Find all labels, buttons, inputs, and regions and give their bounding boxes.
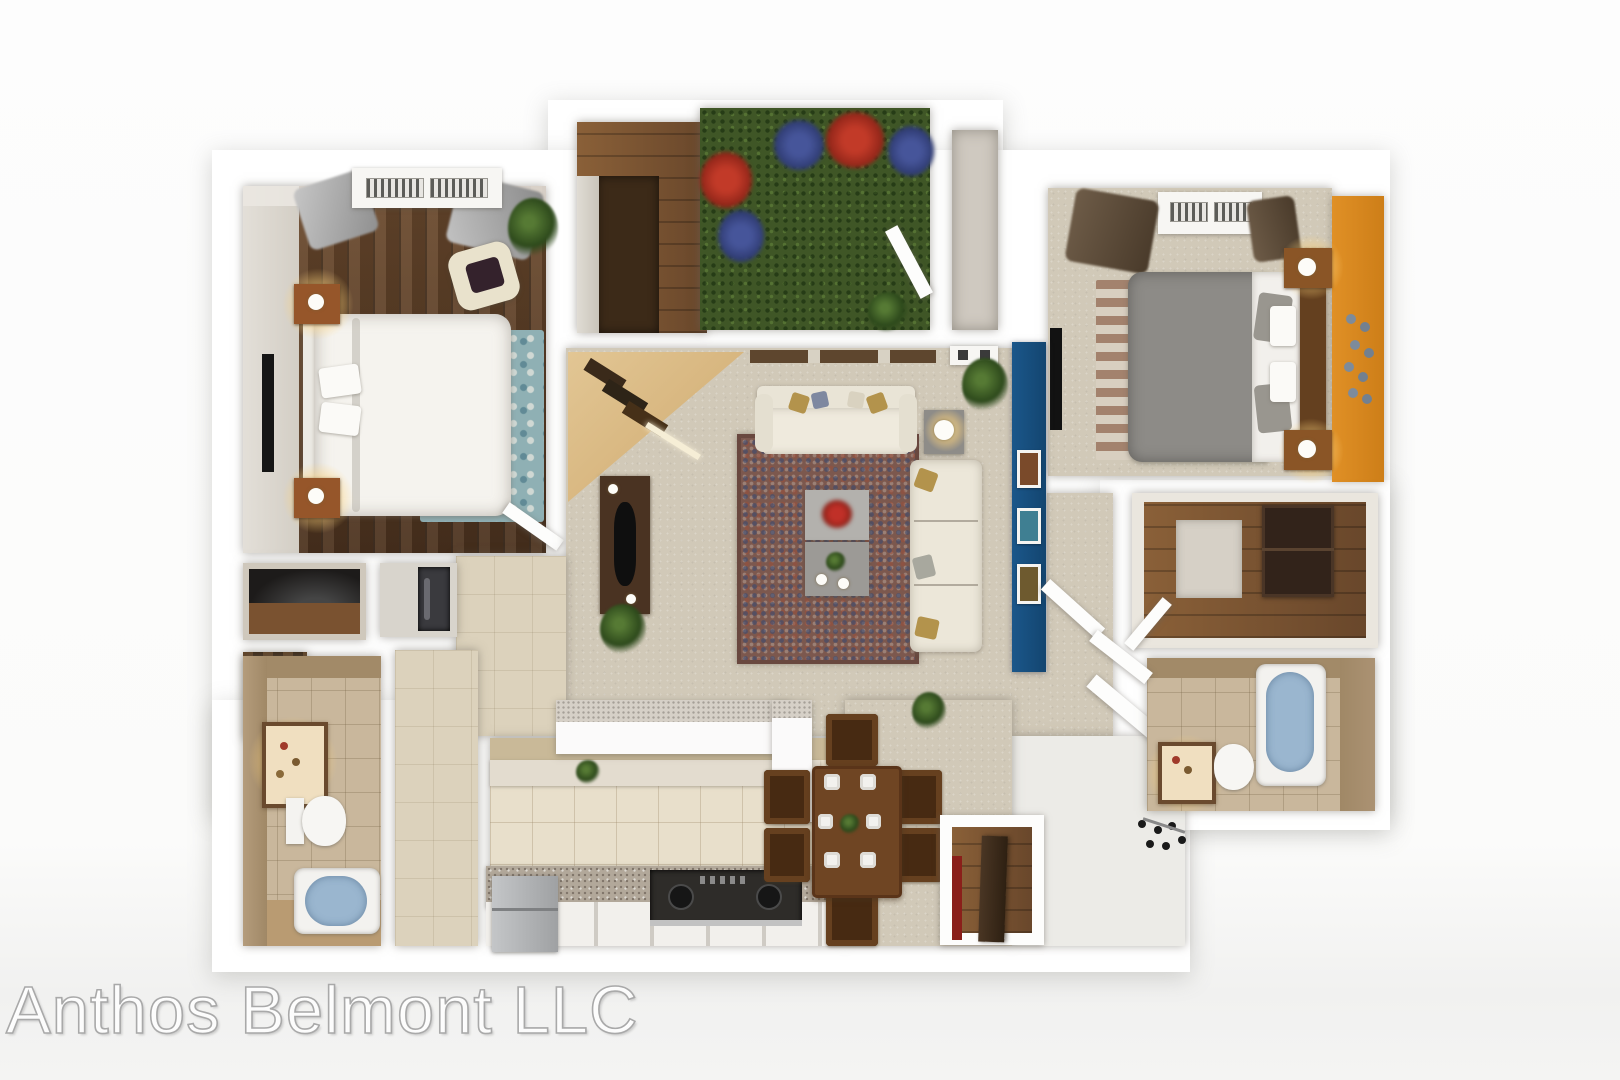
blue-wall-frame-1	[1017, 450, 1041, 488]
watermark-text: Anthos Belmont LLC	[6, 972, 639, 1049]
coffee-table-cup-1	[816, 574, 827, 585]
kitchen-refrigerator	[492, 876, 558, 952]
walkin-closet-dresser	[1262, 505, 1334, 597]
frame-art-3	[1020, 567, 1038, 601]
hallway-lower-floor	[395, 650, 478, 946]
chaise-cushion-line-1	[914, 520, 978, 522]
bedroom2-bed-duvet	[1128, 272, 1268, 462]
bathroom2-toilet-bowl	[1214, 744, 1254, 790]
patio-door-threshold	[750, 350, 936, 363]
master-tv	[262, 354, 274, 472]
bathroom1-vanity	[262, 722, 328, 808]
washer-door-slit	[424, 578, 430, 620]
living-blue-accent-wall	[1012, 342, 1046, 672]
coffee-table-flowers	[822, 500, 852, 528]
kitchen-counter-plant	[576, 760, 600, 784]
hall-connector-floor	[1012, 672, 1047, 736]
dining-chair-south	[826, 892, 878, 946]
sofa-pillow-cream	[847, 391, 866, 410]
chaise-pillow-gold-2	[914, 616, 940, 640]
pantry-red-rack	[952, 856, 962, 940]
kitchen-bar-wing-top	[772, 700, 812, 718]
sofa-seat	[763, 408, 909, 454]
floor-plan-stage: Anthos Belmont LLC	[0, 0, 1620, 1080]
coffee-table-plant	[826, 552, 846, 572]
refrigerator-seam	[492, 908, 558, 911]
washer-unit	[418, 567, 450, 631]
dining-chair-east-2	[896, 828, 942, 882]
dining-chair-west-1	[764, 770, 810, 824]
bedroom2-pillow-white-1	[1270, 306, 1296, 346]
patio-flowers-blue-2	[774, 120, 824, 170]
dining-chair-west-2	[764, 828, 810, 882]
bathroom2-tub-water	[1266, 672, 1314, 772]
dining-chair-east-1	[896, 770, 942, 824]
stove-handle	[650, 920, 802, 926]
console-knob-top	[608, 484, 618, 494]
patio-flowers-blue-3	[888, 126, 934, 176]
master-plant	[508, 198, 558, 258]
kitchen-bar-counter-top	[556, 700, 790, 722]
dining-plate-4	[866, 814, 881, 829]
dining-side-plant	[912, 692, 946, 730]
dining-plate-5	[824, 852, 840, 868]
bedroom2-dresser-vent-left	[1170, 202, 1208, 222]
pantry-door	[978, 836, 1008, 943]
walkin-closet-light-patch	[1176, 520, 1242, 598]
dining-plate-2	[860, 774, 876, 790]
bedroom2-striped-rug	[1096, 280, 1132, 460]
patio-flowers-red-1	[700, 152, 752, 208]
bedroom2-pillow-white-2	[1270, 362, 1296, 402]
stove-burner-2	[756, 884, 782, 910]
linen-closet-counter-top	[249, 569, 360, 603]
bathroom2-vanity-items	[1172, 756, 1180, 764]
console-knob-bottom	[626, 594, 636, 604]
dining-plate-6	[860, 852, 876, 868]
entry-coat-rack	[1138, 820, 1146, 828]
coffee-table-cup-2	[838, 578, 849, 589]
storage-closet-floor	[952, 130, 998, 330]
master-pillow-1	[318, 363, 362, 398]
master-lamp-bottom	[308, 488, 324, 504]
walkin-closet-dresser-seam	[1262, 548, 1334, 551]
blue-wall-frame-3	[1017, 564, 1041, 604]
dining-chair-north	[826, 714, 878, 766]
bathroom1-tub-water	[305, 876, 367, 926]
living-corner-plant	[962, 358, 1008, 412]
master-pillow-2	[318, 402, 361, 437]
bedroom2-wall-decal-flowers	[1346, 314, 1356, 324]
side-table-lamp	[934, 420, 954, 440]
bathroom2-wall-face-right	[1340, 658, 1375, 811]
dining-plate-1	[824, 774, 840, 790]
dining-plate-3	[818, 814, 833, 829]
bedroom2-lamp-top	[1298, 258, 1316, 276]
dining-centerpiece	[840, 814, 860, 834]
patio-planter	[868, 292, 908, 332]
bathroom2-vanity	[1158, 742, 1216, 804]
patio-flowers-blue-1	[718, 210, 764, 262]
chaise-cushion-line-2	[914, 584, 978, 586]
living-tv	[614, 502, 636, 586]
blue-wall-frame-2	[1017, 508, 1041, 544]
living-plant-console	[600, 604, 646, 654]
frame-art-2	[1020, 511, 1038, 541]
bedroom2-lamp-bottom	[1298, 440, 1316, 458]
sofa-arm-right	[899, 394, 917, 452]
stove-burner-1	[668, 884, 694, 910]
master-dresser-vent-left	[366, 178, 424, 198]
laundry-inner-dark	[597, 176, 659, 333]
sofa-arm-left	[755, 394, 773, 452]
patio-flowers-red-2	[826, 112, 884, 168]
master-lamp-top	[308, 294, 324, 310]
bedroom2-curtain-left	[1064, 187, 1160, 274]
linen-closet-wood-front	[249, 603, 360, 634]
bathroom1-toilet-bowl	[302, 796, 346, 846]
sofa-pillow-blue	[811, 391, 830, 410]
bathroom1-vanity-items	[280, 742, 288, 750]
master-dresser-vent-right	[430, 178, 488, 198]
frame-art-1	[1020, 453, 1038, 485]
living-wall-unit-frames	[958, 350, 968, 360]
laundry-wall-face	[577, 176, 599, 333]
bedroom2-tv	[1050, 328, 1062, 430]
stove-controls	[700, 876, 748, 884]
